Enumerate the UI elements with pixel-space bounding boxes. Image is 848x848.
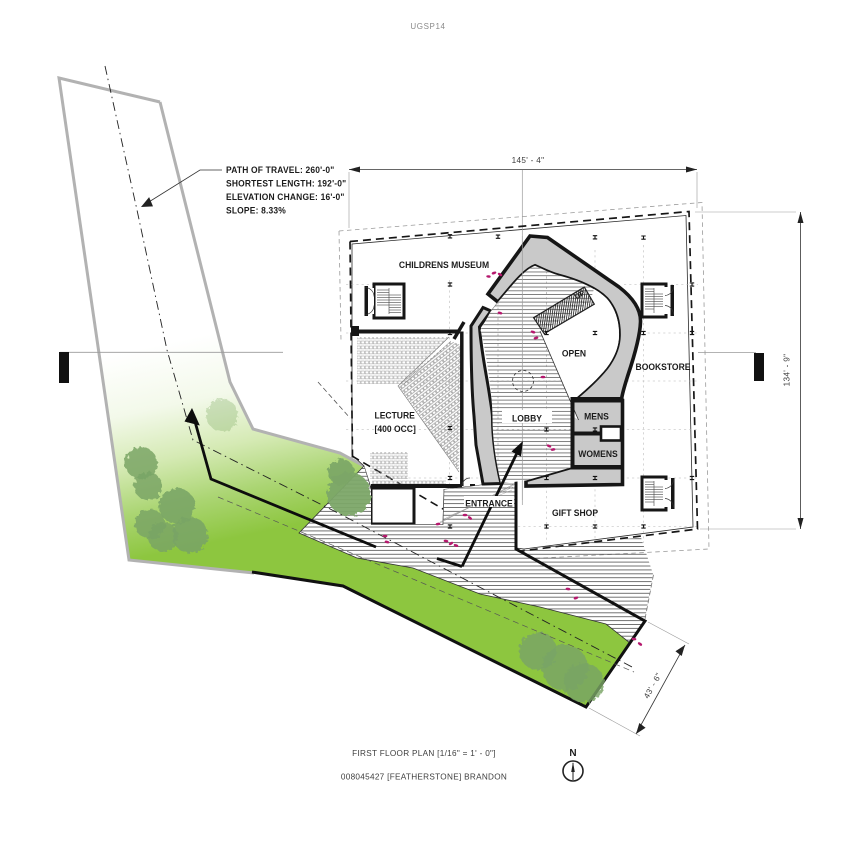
svg-text:SLOPE: 8.33%: SLOPE: 8.33% <box>226 205 286 215</box>
svg-text:[400 OCC]: [400 OCC] <box>375 424 416 434</box>
svg-text:MENS: MENS <box>584 411 609 421</box>
svg-text:OPEN: OPEN <box>562 348 586 358</box>
svg-text:N: N <box>569 748 576 759</box>
svg-text:ELEVATION CHANGE: 16'-0": ELEVATION CHANGE: 16'-0" <box>226 192 345 202</box>
svg-text:CHILDRENS MUSEUM: CHILDRENS MUSEUM <box>399 260 489 270</box>
svg-text:43' - 6": 43' - 6" <box>642 671 663 700</box>
svg-text:SHORTEST LENGTH: 192'-0": SHORTEST LENGTH: 192'-0" <box>226 178 346 188</box>
svg-text:LOBBY: LOBBY <box>512 413 542 423</box>
svg-text:GIFT SHOP: GIFT SHOP <box>552 508 598 518</box>
svg-text:145' - 4": 145' - 4" <box>512 156 545 165</box>
svg-text:134' - 9": 134' - 9" <box>783 354 792 387</box>
svg-text:WOMENS: WOMENS <box>578 449 617 459</box>
svg-text:ENTRANCE: ENTRANCE <box>465 498 513 508</box>
svg-text:PATH OF TRAVEL: 260'-0": PATH OF TRAVEL: 260'-0" <box>226 165 334 175</box>
svg-text:UGSP14: UGSP14 <box>410 22 445 31</box>
svg-text:BOOKSTORE: BOOKSTORE <box>636 362 691 372</box>
svg-text:LECTURE: LECTURE <box>375 410 415 420</box>
svg-text:008045427 [FEATHERSTONE] BRAND: 008045427 [FEATHERSTONE] BRANDON <box>341 773 507 782</box>
svg-text:FIRST FLOOR PLAN [1/16" = 1' -: FIRST FLOOR PLAN [1/16" = 1' - 0"] <box>352 749 496 758</box>
